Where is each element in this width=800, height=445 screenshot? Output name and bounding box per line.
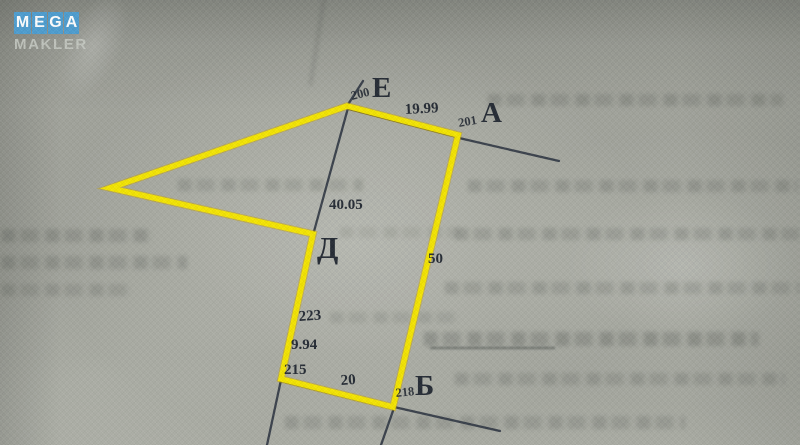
vertex-label-d: Д (317, 230, 338, 265)
photographed-survey-plan: Е А Д Б 200 201 218 223 215 19.99 40.05 … (0, 0, 800, 445)
length-bottom: 20 (340, 372, 356, 389)
mega-makler-logo: M E G A MAKLER (14, 12, 88, 53)
logo-letter-tiles: M E G A (14, 12, 88, 34)
length-a-b: 50 (428, 251, 443, 267)
point-number-218: 218 (395, 384, 415, 400)
point-number-215: 215 (284, 362, 307, 378)
ink-stub-at-point-201 (459, 138, 559, 161)
point-number-200: 200 (349, 85, 371, 103)
length-e-d: 40.05 (329, 197, 363, 213)
logo-tile-g: G (48, 12, 63, 34)
vertex-label-e: Е (372, 72, 391, 104)
ink-line-e-to-d (313, 108, 348, 235)
point-number-223: 223 (298, 307, 322, 325)
length-e-a: 19.99 (404, 100, 439, 118)
ink-stub-right-of-b (394, 407, 500, 431)
ink-line-below-b (381, 408, 394, 445)
vertex-label-b: Б (415, 370, 434, 402)
logo-subtitle: MAKLER (14, 36, 88, 53)
cadastral-plan-drawing: Е А Д Б 200 201 218 223 215 19.99 40.05 … (0, 0, 800, 445)
point-number-201: 201 (457, 113, 478, 130)
logo-tile-a: A (64, 12, 79, 34)
logo-tile-m: M (14, 12, 31, 34)
vertex-label-a: А (481, 97, 502, 129)
length-223-215: 9.94 (291, 337, 318, 353)
logo-tile-e: E (32, 12, 47, 34)
